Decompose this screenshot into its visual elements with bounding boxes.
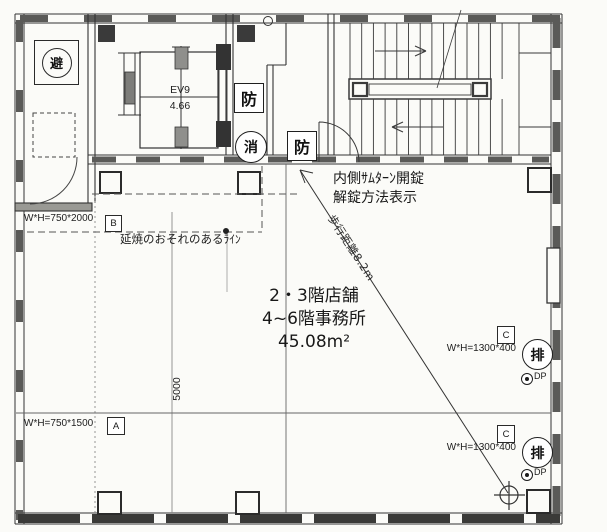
room-use-line1: 2・3階店舗: [250, 285, 378, 308]
room-use-line2: 4~6階事務所: [250, 308, 378, 331]
opening-b-label: W*H=750*2000: [24, 213, 93, 224]
down-arrow-icon: [392, 122, 443, 132]
exhaust-sign-upper: 排: [522, 339, 553, 370]
opening-c2-label: W*H=1300*400: [436, 442, 516, 453]
evacuation-sign: 避: [34, 40, 79, 85]
opening-c1-tag: C: [497, 326, 515, 344]
drain-pipe-label-upper: DP: [534, 372, 547, 382]
extinguisher-sign: 消: [235, 131, 267, 163]
evacuation-sign-label: 避: [50, 53, 63, 72]
evacuation-sign-circle: 避: [42, 48, 72, 78]
arrowhead-icon: [300, 170, 313, 183]
door-swing-arc-left: [30, 157, 77, 204]
opening-a-tag: A: [107, 417, 125, 435]
opening-c2-tag: C: [497, 425, 515, 443]
opening-b-tag: B: [105, 215, 122, 232]
drain-pipe-icon-upper: [521, 373, 533, 385]
drain-pipe-icon-lower: [521, 469, 533, 481]
balcony-room: [30, 113, 77, 204]
elevator-id: EV9: [150, 84, 210, 96]
fire-door-sign-lower: 防: [287, 131, 317, 161]
floor-plan: 避 EV9 4.66 防 消 防 内側ｻﾑﾀｰﾝ開錠 解錠方法表示 延焼のおそれ…: [0, 0, 607, 532]
exhaust-sign-lower: 排: [522, 437, 553, 468]
up-arrow-icon: [375, 46, 426, 56]
door-swing-arc-stair: [319, 122, 359, 162]
dimension-5000: 5000: [171, 369, 183, 409]
fire-spread-label: 延焼のおそれのあるﾗｲﾝ: [120, 233, 241, 246]
fire-door-sign-upper: 防: [234, 83, 264, 113]
elevator-area: 4.66: [150, 100, 210, 112]
opening-a-label: W*H=750*1500: [24, 418, 93, 429]
flight-break-line: [437, 10, 461, 88]
unlock-note-line1: 内側ｻﾑﾀｰﾝ開錠: [333, 170, 424, 189]
opening-c1-label: W*H=1300*400: [436, 343, 516, 354]
room-area: 45.08m²: [250, 331, 378, 354]
stairs: [319, 10, 551, 162]
crosshair-icon: [494, 481, 525, 510]
room-info: 2・3階店舗 4~6階事務所 45.08m²: [250, 285, 378, 354]
drain-pipe-label-lower: DP: [534, 468, 547, 478]
unlock-note: 内側ｻﾑﾀｰﾝ開錠 解錠方法表示: [333, 170, 424, 208]
unlock-note-line2: 解錠方法表示: [333, 189, 424, 208]
